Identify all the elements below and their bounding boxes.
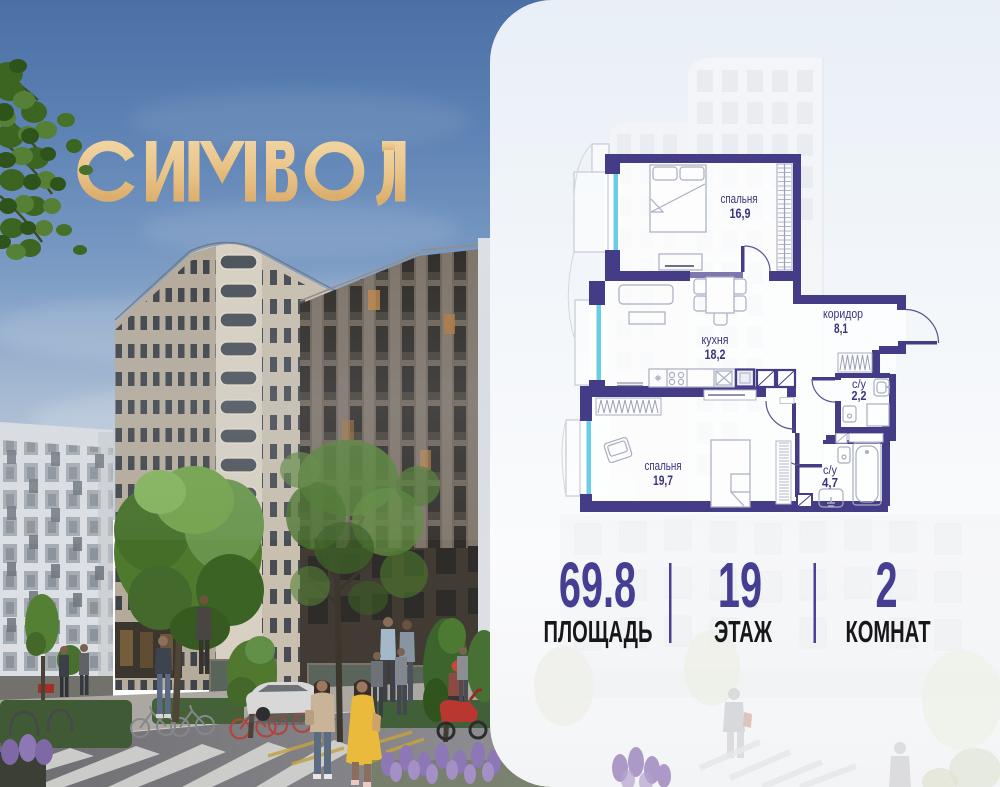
svg-text:кухня: кухня <box>702 333 729 347</box>
svg-text:69.8: 69.8 <box>559 551 636 622</box>
svg-text:2: 2 <box>875 551 897 622</box>
svg-text:коридор: коридор <box>823 307 863 321</box>
svg-text:спальня: спальня <box>645 459 682 473</box>
svg-text:19,7: 19,7 <box>653 472 673 488</box>
svg-text:18,2: 18,2 <box>705 346 726 362</box>
svg-text:19: 19 <box>718 551 762 622</box>
svg-text:спальня: спальня <box>721 192 758 206</box>
svg-text:16,9: 16,9 <box>730 205 751 221</box>
svg-text:ПЛОЩАДЬ: ПЛОЩАДЬ <box>544 614 653 650</box>
svg-text:ЭТАЖ: ЭТАЖ <box>714 614 772 650</box>
svg-text:8,1: 8,1 <box>834 320 848 336</box>
svg-text:4,7: 4,7 <box>822 476 838 490</box>
svg-text:КОМНАТ: КОМНАТ <box>845 614 930 650</box>
svg-text:2,2: 2,2 <box>852 389 867 403</box>
